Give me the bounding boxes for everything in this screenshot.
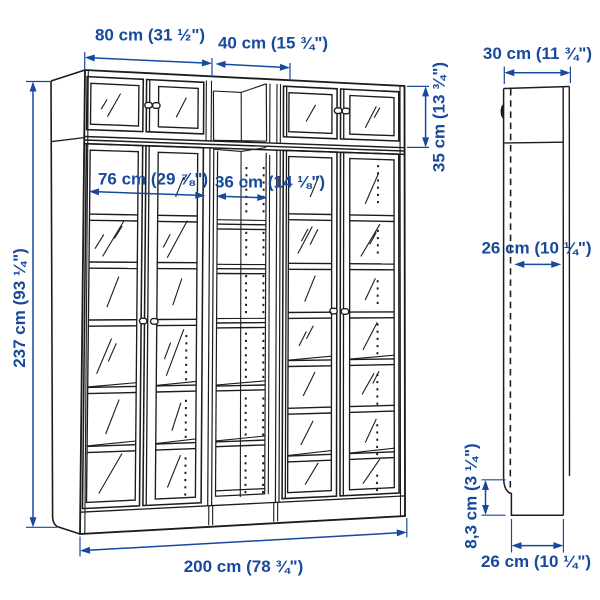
svg-text:237 cm (93 ¼"): 237 cm (93 ¼") — [10, 248, 29, 368]
svg-text:8,3 cm (3 ¼"): 8,3 cm (3 ¼") — [461, 443, 480, 548]
svg-text:76 cm (29 ⅞"): 76 cm (29 ⅞") — [98, 169, 208, 188]
svg-text:30 cm (11 ¾"): 30 cm (11 ¾") — [483, 44, 592, 63]
svg-text:35 cm (13 ¾"): 35 cm (13 ¾") — [429, 62, 448, 172]
svg-text:36 cm (14 ⅛"): 36 cm (14 ⅛") — [215, 172, 325, 191]
svg-text:26 cm (10 ¼"): 26 cm (10 ¼") — [481, 552, 591, 571]
svg-text:40 cm (15 ¾"): 40 cm (15 ¾") — [218, 33, 328, 52]
svg-text:200 cm (78 ¾"): 200 cm (78 ¾") — [184, 557, 304, 576]
svg-text:80 cm (31 ½"): 80 cm (31 ½") — [95, 25, 205, 44]
svg-text:26 cm (10 ¼"): 26 cm (10 ¼") — [481, 238, 591, 257]
